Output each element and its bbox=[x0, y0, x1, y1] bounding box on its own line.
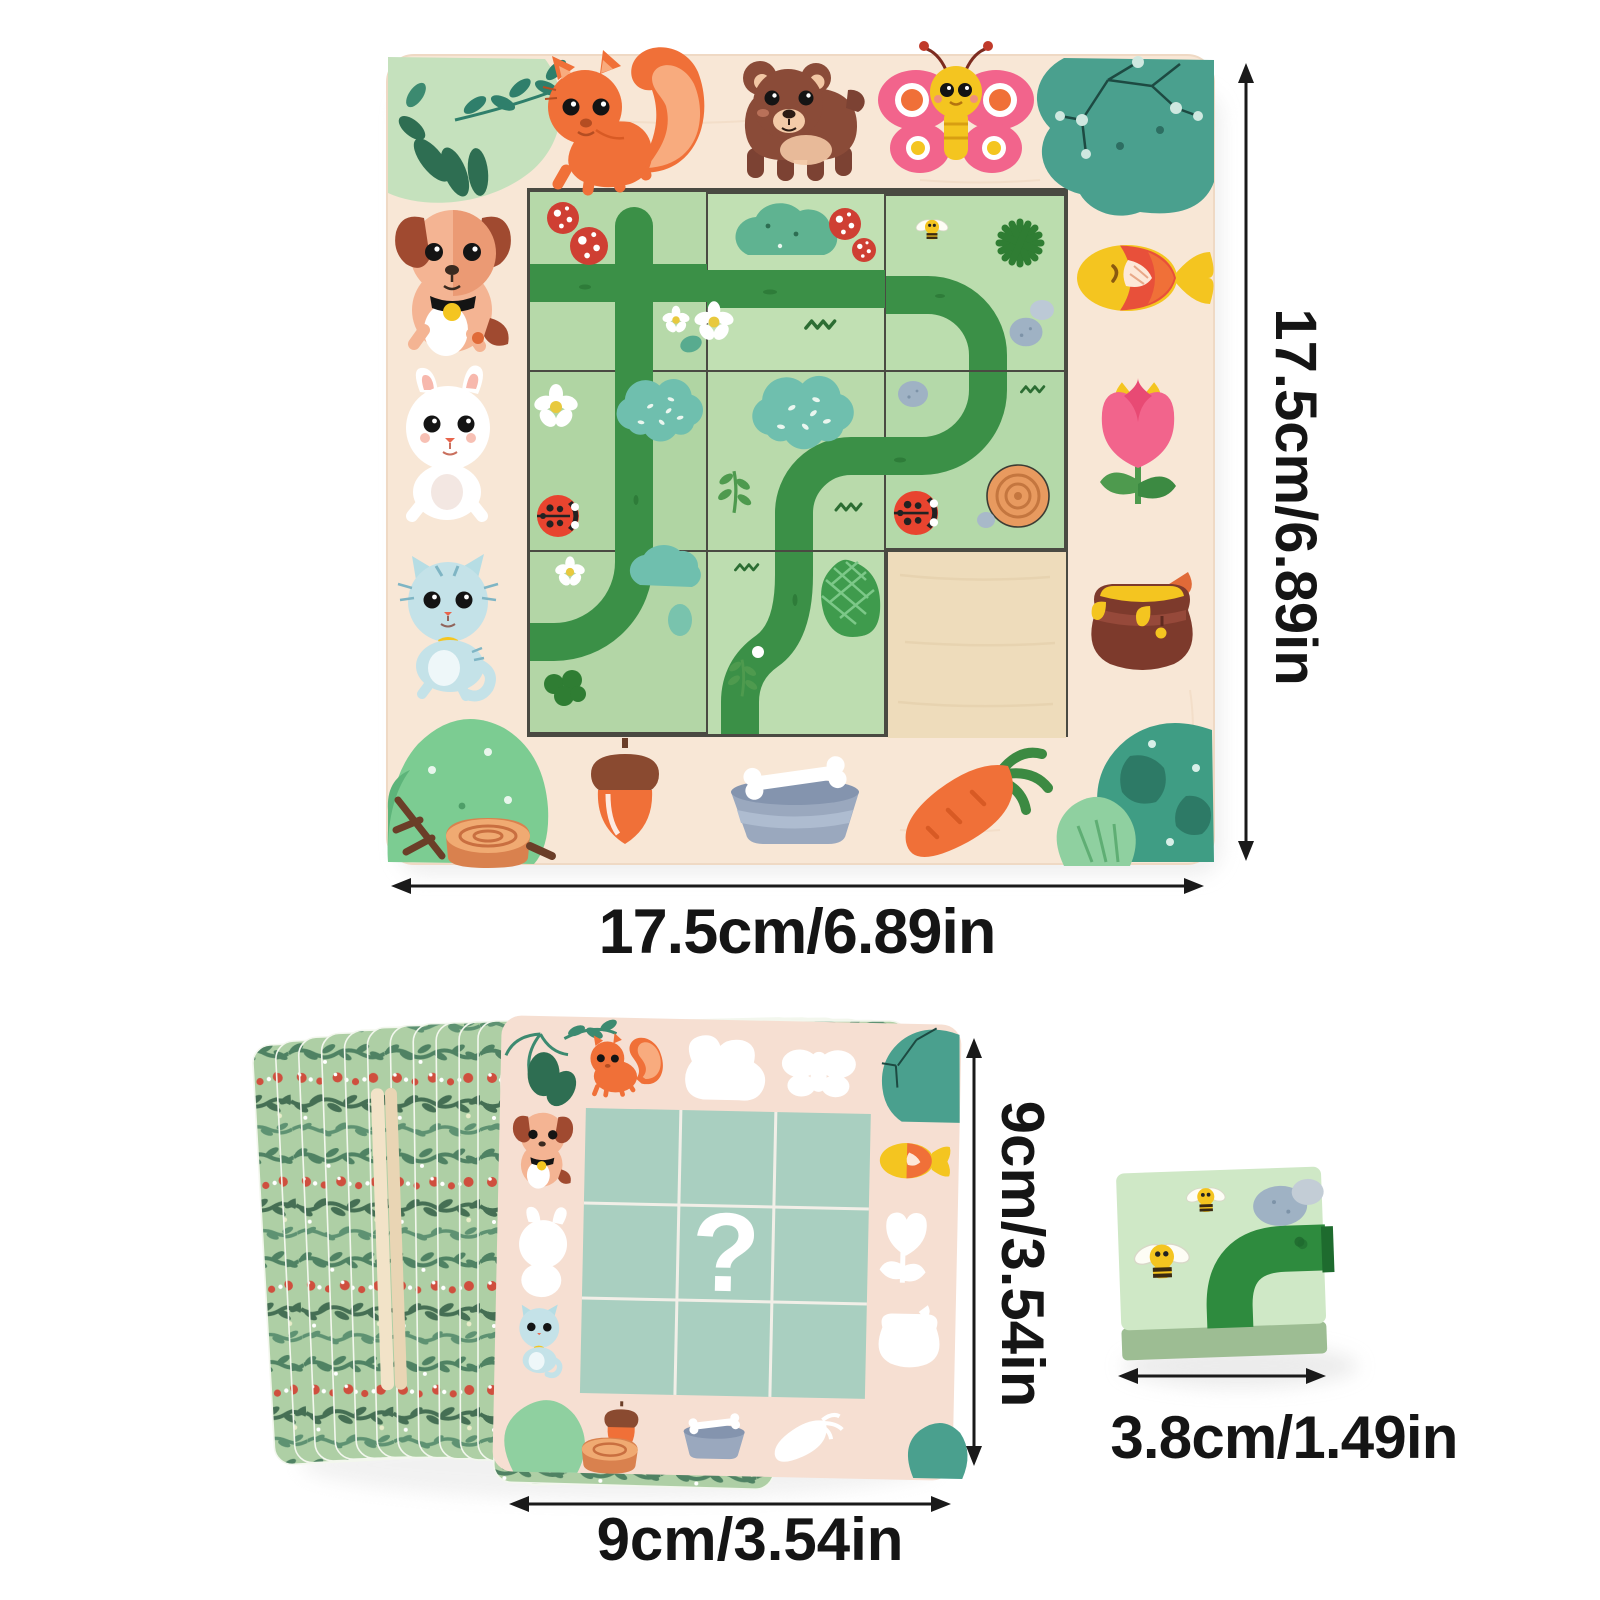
svg-text:3.8cm/1.49in: 3.8cm/1.49in bbox=[1110, 1404, 1457, 1471]
svg-text:9cm/3.54in: 9cm/3.54in bbox=[597, 1506, 904, 1573]
svg-text:9cm/3.54in: 9cm/3.54in bbox=[989, 1101, 1056, 1408]
svg-text:?: ? bbox=[690, 1189, 761, 1315]
svg-text:17.5cm/6.89in: 17.5cm/6.89in bbox=[1263, 308, 1328, 685]
svg-text:17.5cm/6.89in: 17.5cm/6.89in bbox=[599, 897, 996, 967]
